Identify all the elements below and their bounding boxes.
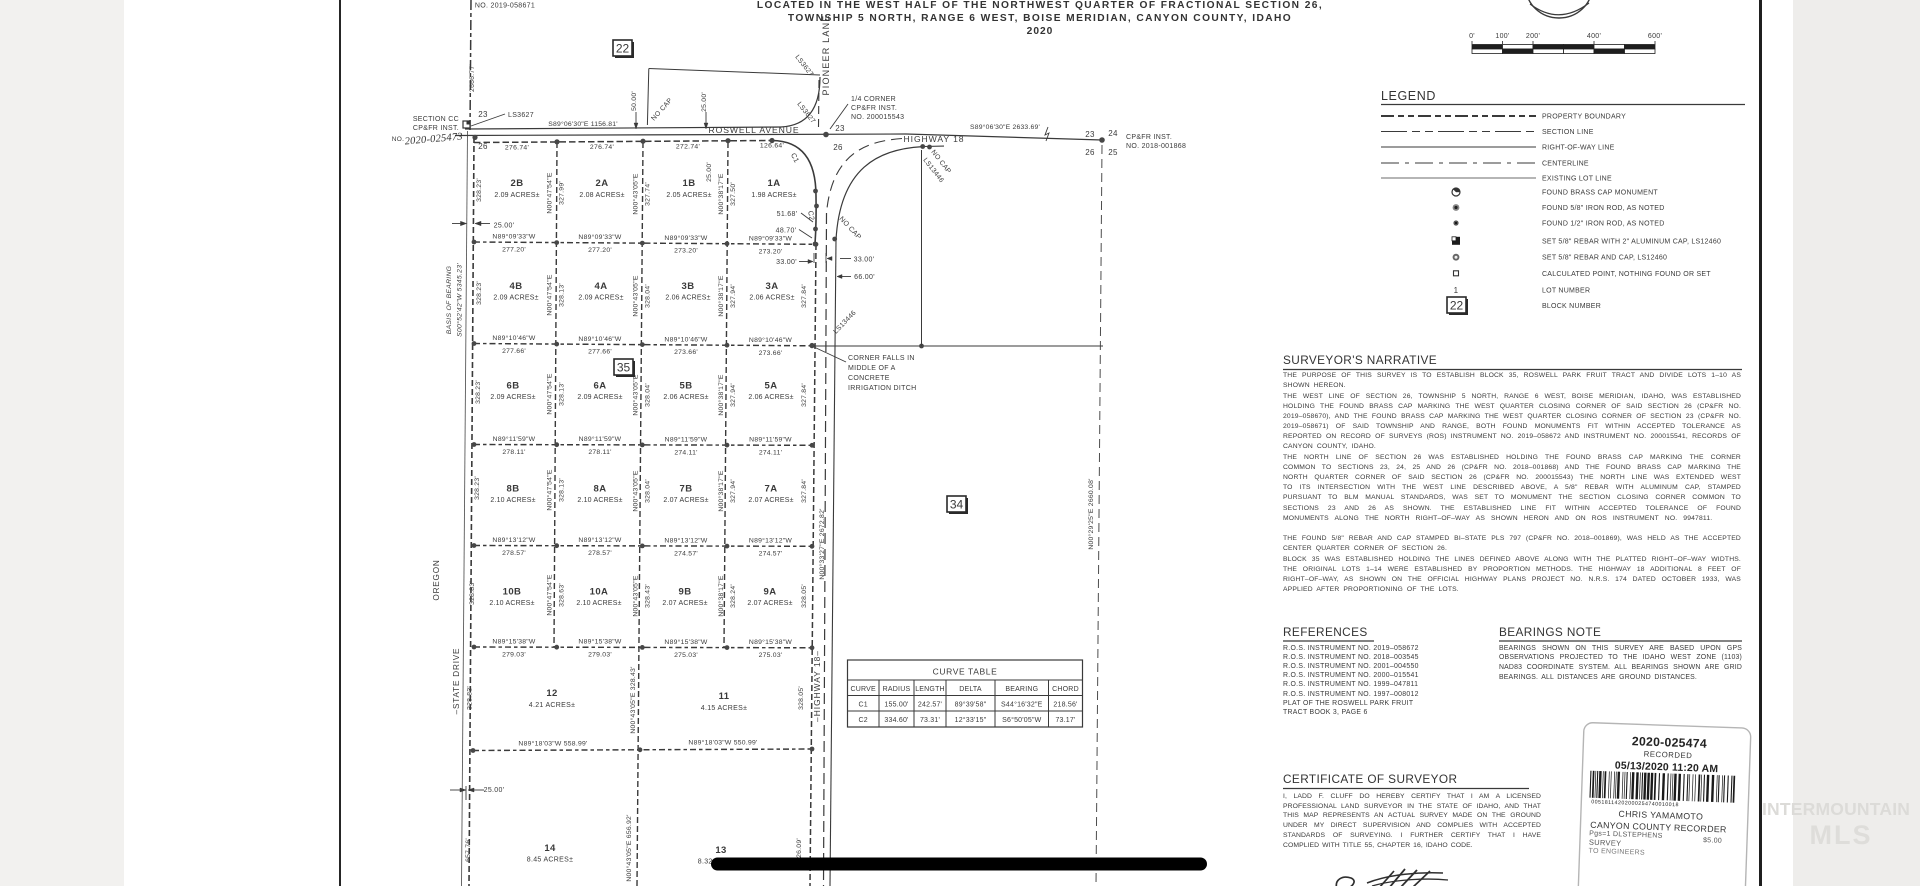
svg-text:2.10 ACRES±: 2.10 ACRES± [577, 497, 622, 504]
svg-text:N89°09'33"W: N89°09'33"W [749, 234, 793, 242]
svg-text:327.94': 327.94' [730, 479, 737, 503]
svg-text:N89°10'46"W: N89°10'46"W [749, 336, 793, 344]
svg-text:N89°09'33"W: N89°09'33"W [578, 233, 622, 241]
svg-text:PROPERTY BOUNDARY: PROPERTY BOUNDARY [1542, 114, 1626, 121]
svg-text:327.74': 327.74' [645, 182, 652, 206]
svg-text:327.50': 327.50' [730, 182, 737, 206]
svg-text:2.09 ACRES±: 2.09 ACRES± [578, 295, 623, 302]
svg-text:278.11': 278.11' [502, 449, 525, 456]
svg-text:12°33'15": 12°33'15" [955, 716, 987, 724]
svg-text:N89°18'03"W 558.99': N89°18'03"W 558.99' [518, 740, 587, 748]
svg-text:328.24': 328.24' [730, 584, 737, 608]
svg-text:328.23': 328.23' [476, 178, 483, 202]
svg-text:275.03': 275.03' [759, 652, 783, 659]
svg-text:328.83': 328.83' [469, 581, 476, 605]
svg-text:1/4 CORNER: 1/4 CORNER [851, 96, 896, 103]
svg-text:2.08 ACRES±: 2.08 ACRES± [579, 192, 624, 199]
svg-text:N00°43'05"E: N00°43'05"E [632, 374, 640, 416]
svg-text:NO. 200015543: NO. 200015543 [851, 114, 904, 121]
svg-text:BASIS OF BEARING: BASIS OF BEARING [446, 266, 453, 335]
svg-text:SECTION LINE: SECTION LINE [1542, 129, 1594, 136]
svg-text:2020-025474: 2020-025474 [1632, 734, 1708, 751]
svg-text:2666.77': 2666.77' [469, 64, 476, 92]
svg-text:276.74': 276.74' [505, 145, 529, 152]
svg-text:334.60': 334.60' [884, 717, 908, 724]
svg-text:LS13446: LS13446 [832, 309, 857, 335]
svg-text:CENTERLINE: CENTERLINE [1542, 161, 1589, 168]
svg-text:327.84': 327.84' [801, 479, 808, 503]
svg-text:73.31': 73.31' [920, 717, 940, 724]
svg-text:8A: 8A [594, 484, 607, 495]
svg-text:BLOCK NUMBER: BLOCK NUMBER [1542, 303, 1601, 310]
svg-text:2.05 ACRES±: 2.05 ACRES± [666, 192, 711, 199]
svg-text:N00°33'27"E 2672.82': N00°33'27"E 2672.82' [818, 508, 826, 579]
svg-text:48.70': 48.70' [776, 228, 797, 235]
svg-text:N89°10'46"W: N89°10'46"W [492, 334, 536, 342]
svg-text:CONCRETE: CONCRETE [848, 375, 890, 382]
svg-text:SECTION CC: SECTION CC [413, 116, 459, 123]
svg-text:9B: 9B [679, 587, 692, 598]
svg-text:35: 35 [617, 361, 631, 375]
svg-text:N89°13'12"W: N89°13'12"W [749, 537, 793, 545]
svg-text:LENGTH: LENGTH [915, 686, 945, 693]
svg-text:N00°38'17"E: N00°38'17"E [717, 575, 725, 617]
svg-text:LS3627: LS3627 [508, 112, 534, 119]
svg-text:328.05': 328.05' [801, 584, 808, 608]
svg-text:NO CAP: NO CAP [838, 216, 863, 242]
svg-text:23: 23 [1085, 130, 1095, 139]
svg-text:327.94': 327.94' [730, 284, 737, 308]
svg-text:328.04': 328.04' [645, 479, 652, 503]
svg-text:657.76': 657.76' [465, 838, 472, 862]
svg-text:N89°10'46"W: N89°10'46"W [578, 335, 622, 343]
svg-text:CP&FR INST.: CP&FR INST. [482, 0, 528, 1]
svg-text:N89°15'38"W: N89°15'38"W [664, 638, 708, 646]
svg-text:2.06 ACRES±: 2.06 ACRES± [665, 295, 710, 302]
svg-text:328.83': 328.83' [467, 686, 474, 710]
svg-text:275.03': 275.03' [674, 652, 698, 659]
svg-text:C1: C1 [789, 151, 802, 164]
svg-text:S6°50'05"W: S6°50'05"W [1002, 716, 1042, 724]
svg-text:328.13': 328.13' [559, 382, 566, 406]
svg-text:N00°47'54"E: N00°47'54"E [546, 274, 554, 316]
svg-text:C2: C2 [806, 210, 817, 221]
svg-text:S89°06'30"E 1156.81': S89°06'30"E 1156.81' [548, 120, 617, 128]
svg-text:HIGHWAY 18: HIGHWAY 18 [904, 134, 965, 144]
svg-text:274.57': 274.57' [674, 550, 698, 557]
svg-text:N00°38'17"E: N00°38'17"E [717, 374, 725, 416]
svg-text:126.64': 126.64' [760, 143, 784, 150]
svg-text:34: 34 [950, 498, 964, 512]
svg-text:14: 14 [544, 843, 556, 854]
svg-text:273.66': 273.66' [759, 350, 783, 357]
svg-text:REFERENCES: REFERENCES [1283, 625, 1368, 639]
svg-text:33.00': 33.00' [854, 257, 875, 264]
svg-text:327.94': 327.94' [730, 383, 737, 407]
svg-text:4B: 4B [510, 281, 523, 292]
svg-text:25: 25 [1108, 148, 1118, 157]
svg-text:2020-025473: 2020-025473 [404, 131, 463, 147]
svg-text:CP&FR INST.: CP&FR INST. [851, 105, 897, 112]
svg-text:273.20': 273.20' [759, 248, 783, 255]
svg-text:C1: C1 [859, 702, 868, 709]
svg-text:CP&FR INST.: CP&FR INST. [413, 125, 459, 132]
svg-text:N00°47'54"E: N00°47'54"E [546, 172, 554, 214]
svg-text:N00°43'05"E: N00°43'05"E [632, 275, 640, 317]
svg-text:N89°11'59"W: N89°11'59"W [493, 435, 536, 443]
svg-text:–HIGHWAY 18–: –HIGHWAY 18– [812, 650, 822, 722]
svg-text:328.63': 328.63' [559, 583, 566, 607]
svg-text:1B: 1B [683, 178, 696, 189]
svg-text:0': 0' [1469, 33, 1475, 40]
svg-text:LOT NUMBER: LOT NUMBER [1542, 288, 1590, 295]
svg-text:2B: 2B [511, 178, 524, 189]
svg-text:66.00': 66.00' [854, 274, 875, 281]
svg-text:2.09 ACRES±: 2.09 ACRES± [494, 192, 539, 199]
svg-text:N00°43'05"E 656.92': N00°43'05"E 656.92' [625, 814, 633, 881]
svg-text:RADIUS: RADIUS [883, 686, 911, 693]
svg-text:328.05': 328.05' [798, 686, 805, 710]
svg-text:3A: 3A [766, 281, 779, 292]
svg-text:278.11': 278.11' [588, 449, 611, 456]
svg-text:50.00': 50.00' [631, 91, 638, 111]
svg-text:CERTIFICATE OF SURVEYOR: CERTIFICATE OF SURVEYOR [1283, 772, 1457, 786]
svg-text:328.04': 328.04' [645, 383, 652, 407]
svg-text:25.00': 25.00' [701, 92, 708, 112]
svg-text:327.84': 327.84' [801, 383, 808, 407]
svg-text:ROSWELL AVENUE: ROSWELL AVENUE [709, 125, 800, 135]
svg-text:N89°10'46"W: N89°10'46"W [664, 335, 708, 343]
svg-text:2.07 ACRES±: 2.07 ACRES± [747, 600, 792, 607]
svg-text:N00°47'54"E: N00°47'54"E [546, 373, 554, 415]
svg-text:4.21 ACRES±: 4.21 ACRES± [529, 702, 575, 709]
svg-text:CP&FR INST.: CP&FR INST. [1126, 134, 1172, 141]
svg-text:CURVE: CURVE [851, 686, 877, 693]
svg-text:N00°38'17"E: N00°38'17"E [717, 173, 725, 215]
svg-text:273.20': 273.20' [674, 248, 698, 255]
svg-text:89°39'58": 89°39'58" [955, 701, 987, 709]
svg-text:RECORDED: RECORDED [1644, 750, 1693, 761]
svg-text:100': 100' [1495, 33, 1509, 40]
svg-text:274.57': 274.57' [759, 551, 783, 558]
svg-text:2.07 ACRES±: 2.07 ACRES± [662, 600, 707, 607]
svg-text:279.03': 279.03' [588, 652, 612, 659]
svg-text:2.06 ACRES±: 2.06 ACRES± [748, 394, 793, 401]
svg-text:13: 13 [715, 845, 726, 856]
svg-text:IRRIGATION DITCH: IRRIGATION DITCH [848, 385, 916, 392]
svg-text:277.20': 277.20' [502, 247, 526, 254]
svg-text:S89°06'30"E 2633.69': S89°06'30"E 2633.69' [970, 123, 1040, 131]
svg-text:26: 26 [478, 142, 488, 151]
svg-text:22: 22 [616, 42, 630, 56]
svg-text:OREGON: OREGON [432, 559, 441, 600]
svg-text:BEARING: BEARING [1005, 686, 1038, 693]
svg-text:272.74': 272.74' [676, 143, 700, 150]
svg-text:FOUND 1/2" IRON ROD, AS NOTED: FOUND 1/2" IRON ROD, AS NOTED [1542, 221, 1665, 228]
svg-text:7A: 7A [765, 484, 778, 495]
svg-text:242.57': 242.57' [918, 702, 942, 709]
svg-text:2.09 ACRES±: 2.09 ACRES± [490, 394, 535, 401]
svg-text:277.66': 277.66' [502, 348, 526, 355]
svg-text:22: 22 [1450, 299, 1464, 313]
svg-text:23: 23 [478, 110, 488, 119]
svg-text:8.45 ACRES±: 8.45 ACRES± [527, 857, 573, 864]
svg-text:EXISTING LOT LINE: EXISTING LOT LINE [1542, 176, 1612, 183]
svg-text:4A: 4A [595, 281, 608, 292]
svg-text:2A: 2A [596, 178, 609, 189]
svg-text:218.56': 218.56' [1053, 702, 1077, 709]
svg-text:327.84': 327.84' [801, 284, 808, 308]
svg-text:328.23': 328.23' [476, 281, 483, 305]
svg-text:278.57': 278.57' [502, 550, 526, 557]
svg-text:6B: 6B [507, 381, 520, 392]
svg-text:5B: 5B [680, 381, 693, 392]
svg-text:328.43': 328.43' [645, 584, 652, 608]
svg-text:N89°18'03"W 550.99': N89°18'03"W 550.99' [688, 739, 757, 747]
svg-text:CALCULATED POINT, NOTHING FOUN: CALCULATED POINT, NOTHING FOUND OR SET [1542, 271, 1711, 278]
svg-text:NO CAP: NO CAP [650, 97, 674, 123]
svg-text:NO. 2019-058671: NO. 2019-058671 [475, 3, 535, 10]
svg-text:MIDDLE OF A: MIDDLE OF A [848, 365, 896, 372]
svg-text:N89°13'12"W: N89°13'12"W [492, 536, 536, 544]
svg-text:NO.: NO. [392, 136, 404, 143]
svg-text:600': 600' [1648, 33, 1662, 40]
svg-text:3B: 3B [682, 281, 695, 292]
svg-text:2.07 ACRES±: 2.07 ACRES± [663, 497, 708, 504]
svg-text:25.00': 25.00' [706, 162, 713, 182]
svg-text:N89°11'59"W: N89°11'59"W [749, 436, 792, 444]
svg-text:25.00': 25.00' [484, 787, 505, 794]
svg-text:DELTA: DELTA [959, 686, 982, 693]
svg-text:CURVE TABLE: CURVE TABLE [933, 667, 998, 677]
svg-text:277.66': 277.66' [588, 349, 612, 356]
svg-text:12: 12 [546, 688, 557, 699]
svg-text:23: 23 [835, 124, 845, 133]
svg-text:N00°47'54"E: N00°47'54"E [546, 469, 554, 511]
svg-text:–STATE DRIVE: –STATE DRIVE [452, 648, 461, 715]
svg-text:RIGHT-OF-WAY LINE: RIGHT-OF-WAY LINE [1542, 145, 1615, 152]
svg-text:1: 1 [1454, 286, 1459, 295]
svg-text:N00°38'17"E: N00°38'17"E [717, 470, 725, 512]
svg-text:200': 200' [1526, 33, 1540, 40]
svg-text:N89°11'59"W: N89°11'59"W [665, 435, 708, 443]
svg-text:N00°47'54"E: N00°47'54"E [546, 574, 554, 616]
svg-text:SET 5/8" REBAR AND CAP, LS1246: SET 5/8" REBAR AND CAP, LS12460 [1542, 255, 1667, 262]
svg-text:N00°43'05"E 328.43': N00°43'05"E 328.43' [629, 666, 637, 733]
svg-text:26: 26 [833, 143, 843, 152]
svg-text:279.03': 279.03' [502, 651, 526, 658]
svg-text:73.17': 73.17' [1055, 717, 1075, 724]
svg-text:N00°43'05"E: N00°43'05"E [632, 470, 640, 512]
svg-text:33.00': 33.00' [776, 259, 797, 266]
svg-text:FOUND 5/8" IRON ROD, AS NOTED: FOUND 5/8" IRON ROD, AS NOTED [1542, 205, 1665, 212]
svg-text:N89°09'33"W: N89°09'33"W [664, 234, 708, 242]
svg-text:$5.00: $5.00 [1703, 837, 1722, 845]
svg-text:11: 11 [719, 691, 730, 702]
svg-text:S00°52'42"W 5345.23': S00°52'42"W 5345.23' [456, 263, 464, 337]
svg-text:N00°29'25"E 2660.08': N00°29'25"E 2660.08' [1087, 478, 1095, 549]
svg-text:278.57': 278.57' [588, 550, 612, 557]
svg-text:328.23': 328.23' [474, 476, 481, 500]
svg-text:N00°38'17"E: N00°38'17"E [717, 275, 725, 317]
svg-text:155.00': 155.00' [884, 702, 908, 709]
svg-text:N89°15'38"W: N89°15'38"W [492, 638, 536, 646]
svg-text:N00°43'05"E: N00°43'05"E [632, 173, 640, 215]
svg-text:7B: 7B [680, 484, 693, 495]
svg-text:1.98 ACRES±: 1.98 ACRES± [751, 192, 796, 199]
svg-text:328.23': 328.23' [475, 380, 482, 404]
svg-text:327.99': 327.99' [559, 181, 566, 205]
svg-text:328.04': 328.04' [645, 284, 652, 308]
svg-text:LS3627: LS3627 [795, 101, 816, 125]
svg-text:NO. 2018-001868: NO. 2018-001868 [1126, 143, 1186, 150]
svg-text:2.06 ACRES±: 2.06 ACRES± [749, 295, 794, 302]
svg-text:N89°13'12"W: N89°13'12"W [664, 536, 708, 544]
svg-text:328.13': 328.13' [559, 283, 566, 307]
svg-text:N89°15'38"W: N89°15'38"W [749, 638, 793, 646]
svg-text:276.74': 276.74' [590, 144, 614, 151]
svg-text:274.11': 274.11' [674, 449, 697, 456]
svg-text:N89°09'33"W: N89°09'33"W [492, 233, 536, 241]
svg-text:N89°13'12"W: N89°13'12"W [578, 536, 622, 544]
svg-text:274.11': 274.11' [759, 450, 782, 457]
svg-text:CORNER FALLS IN: CORNER FALLS IN [848, 355, 915, 362]
svg-text:10A: 10A [590, 587, 609, 598]
svg-text:277.20': 277.20' [588, 247, 612, 254]
svg-text:2.09 ACRES±: 2.09 ACRES± [577, 394, 622, 401]
svg-text:2.06 ACRES±: 2.06 ACRES± [663, 394, 708, 401]
svg-text:N89°15'38"W: N89°15'38"W [578, 638, 622, 646]
svg-text:N89°11'59"W: N89°11'59"W [579, 435, 622, 443]
svg-text:LEGEND: LEGEND [1381, 89, 1436, 103]
svg-text:328.13': 328.13' [559, 478, 566, 502]
svg-text:10B: 10B [503, 587, 522, 598]
svg-text:2.10 ACRES±: 2.10 ACRES± [576, 600, 621, 607]
svg-text:4.15 ACRES±: 4.15 ACRES± [701, 705, 747, 712]
svg-text:C2: C2 [859, 717, 868, 724]
svg-text:1A: 1A [768, 178, 781, 189]
svg-text:5A: 5A [765, 381, 778, 392]
svg-text:8B: 8B [507, 484, 520, 495]
svg-text:CHORD: CHORD [1052, 686, 1079, 693]
svg-text:51.68': 51.68' [777, 211, 798, 218]
svg-text:BEARINGS NOTE: BEARINGS NOTE [1499, 625, 1601, 639]
svg-text:26: 26 [1085, 148, 1095, 157]
svg-text:N00°43'05"E: N00°43'05"E [632, 575, 640, 617]
svg-text:273.66': 273.66' [674, 349, 698, 356]
svg-text:25.00': 25.00' [494, 223, 515, 230]
svg-text:FOUND BRASS CAP MONUMENT: FOUND BRASS CAP MONUMENT [1542, 190, 1658, 197]
svg-text:SURVEYOR'S NARRATIVE: SURVEYOR'S NARRATIVE [1283, 353, 1437, 367]
svg-text:2.09 ACRES±: 2.09 ACRES± [493, 295, 538, 302]
svg-text:2.07 ACRES±: 2.07 ACRES± [748, 497, 793, 504]
svg-text:2.10 ACRES±: 2.10 ACRES± [490, 497, 535, 504]
svg-text:9A: 9A [764, 587, 777, 598]
svg-text:SURVEY: SURVEY [1589, 838, 1622, 848]
svg-text:SET 5/8" REBAR WITH 2" ALUMINU: SET 5/8" REBAR WITH 2" ALUMINUM CAP, LS1… [1542, 238, 1721, 245]
svg-text:S44°16'32"E: S44°16'32"E [1001, 701, 1043, 709]
svg-text:6A: 6A [594, 381, 607, 392]
svg-text:24: 24 [1108, 129, 1118, 138]
svg-text:2.10 ACRES±: 2.10 ACRES± [489, 600, 534, 607]
svg-text:400': 400' [1587, 33, 1601, 40]
